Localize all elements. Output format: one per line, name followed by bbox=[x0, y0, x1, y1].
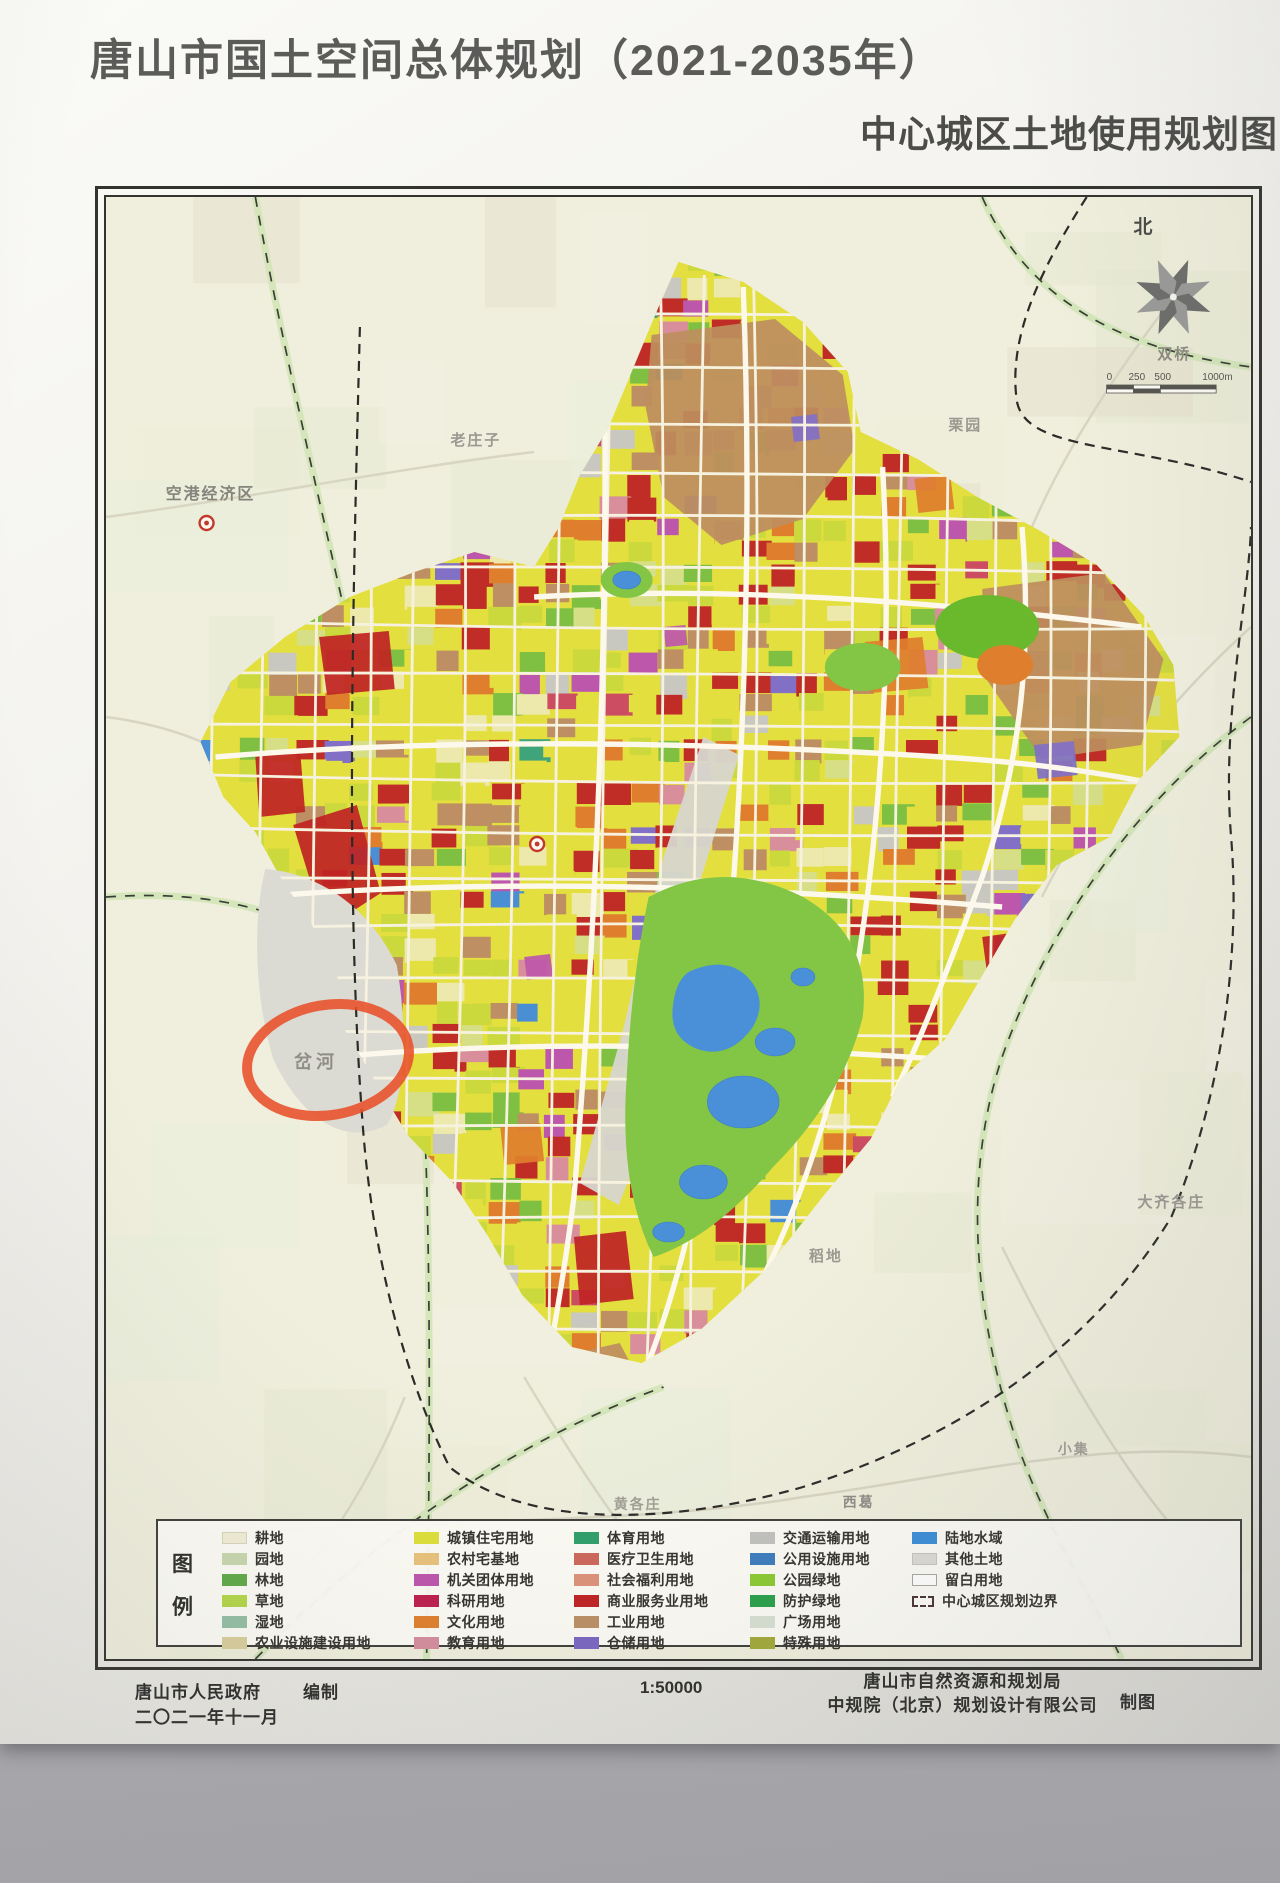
legend-label: 城镇住宅用地 bbox=[447, 1528, 534, 1548]
map-frame: 北02505001000m老庄子空港经济区栗园双桥大齐各庄稻地小集黄各庄西葛岔河… bbox=[95, 186, 1262, 1670]
legend-item: 体育用地 bbox=[574, 1530, 750, 1546]
color-swatch bbox=[222, 1574, 247, 1586]
legend-label: 园地 bbox=[255, 1549, 284, 1569]
place-label: 大齐各庄 bbox=[1137, 1193, 1205, 1211]
color-swatch bbox=[750, 1637, 775, 1649]
legend-label: 广场用地 bbox=[783, 1612, 841, 1632]
color-swatch bbox=[750, 1595, 775, 1607]
legend-label: 留白用地 bbox=[945, 1570, 1003, 1590]
legend-label: 体育用地 bbox=[607, 1528, 665, 1548]
color-swatch bbox=[414, 1574, 439, 1586]
legend-column: 耕地园地林地草地湿地农业设施建设用地 bbox=[222, 1530, 414, 1638]
publisher-name: 唐山市人民政府 bbox=[135, 1683, 261, 1702]
legend-item: 耕地 bbox=[222, 1530, 414, 1546]
legend: 图例 耕地园地林地草地湿地农业设施建设用地城镇住宅用地农村宅基地机关团体用地科研… bbox=[156, 1519, 1242, 1647]
color-swatch bbox=[222, 1637, 247, 1649]
credit-publisher: 唐山市人民政府编制 bbox=[135, 1678, 339, 1703]
color-swatch bbox=[414, 1595, 439, 1607]
color-swatch bbox=[414, 1637, 439, 1649]
poster-title: 唐山市国土空间总体规划（2021-2035年） bbox=[90, 26, 944, 88]
color-swatch bbox=[574, 1574, 599, 1586]
legend-label: 其他土地 bbox=[945, 1549, 1003, 1569]
legend-item: 社会福利用地 bbox=[574, 1572, 750, 1588]
legend-label: 特殊用地 bbox=[783, 1633, 841, 1653]
color-swatch bbox=[750, 1616, 775, 1628]
scale-tick-label: 250 bbox=[1129, 372, 1146, 383]
scale-tick-label: 1000m bbox=[1202, 372, 1232, 383]
color-swatch bbox=[750, 1574, 775, 1586]
legend-label: 农村宅基地 bbox=[447, 1549, 520, 1569]
legend-label: 中心城区规划边界 bbox=[942, 1591, 1058, 1611]
legend-label: 科研用地 bbox=[447, 1591, 505, 1611]
legend-title-char: 图 bbox=[172, 1548, 222, 1578]
legend-item: 广场用地 bbox=[750, 1614, 912, 1630]
legend-label: 陆地水域 bbox=[945, 1528, 1003, 1548]
legend-label: 农业设施建设用地 bbox=[255, 1633, 371, 1653]
poster-subtitle: 中心城区土地使用规划图 bbox=[860, 104, 1280, 158]
legend-item: 农村宅基地 bbox=[414, 1551, 574, 1567]
legend-label: 湿地 bbox=[255, 1612, 284, 1632]
legend-item: 湿地 bbox=[222, 1614, 414, 1630]
land-use-map: 北02505001000m老庄子空港经济区栗园双桥大齐各庄稻地小集黄各庄西葛岔河 bbox=[106, 197, 1251, 1659]
color-swatch bbox=[574, 1553, 599, 1565]
legend-item: 公园绿地 bbox=[750, 1572, 912, 1588]
north-label: 北 bbox=[1134, 216, 1153, 238]
legend-item: 农业设施建设用地 bbox=[222, 1635, 414, 1651]
boundary-symbol bbox=[912, 1596, 934, 1607]
poster-photo: 唐山市国土空间总体规划（2021-2035年） 中心城区土地使用规划图 北025… bbox=[0, 0, 1280, 1744]
legend-column: 体育用地医疗卫生用地社会福利用地商业服务业用地工业用地仓储用地 bbox=[574, 1530, 750, 1638]
credit-agency-role: 制图 bbox=[1120, 1688, 1156, 1713]
scale-tick-label: 500 bbox=[1154, 372, 1171, 383]
color-swatch bbox=[414, 1532, 439, 1544]
legend-column: 城镇住宅用地农村宅基地机关团体用地科研用地文化用地教育用地 bbox=[414, 1530, 574, 1638]
agency-1: 唐山市自然资源和规划局 bbox=[864, 1672, 1062, 1691]
place-label: 栗园 bbox=[948, 417, 982, 434]
credit-agencies: 唐山市自然资源和规划局 中规院（北京）规划设计有限公司 bbox=[795, 1670, 1130, 1718]
legend-item: 中心城区规划边界 bbox=[912, 1593, 1112, 1609]
annotation-label: 岔河 bbox=[294, 1051, 338, 1072]
legend-column: 陆地水域其他土地留白用地中心城区规划边界 bbox=[912, 1530, 1112, 1638]
legend-item: 陆地水域 bbox=[912, 1530, 1112, 1546]
place-label: 西葛 bbox=[843, 1494, 875, 1510]
legend-label: 医疗卫生用地 bbox=[607, 1549, 694, 1569]
scale-tick-label: 0 bbox=[1107, 372, 1113, 383]
legend-label: 林地 bbox=[255, 1570, 284, 1590]
color-swatch bbox=[414, 1553, 439, 1565]
color-swatch bbox=[574, 1616, 599, 1628]
color-swatch bbox=[912, 1532, 937, 1544]
legend-item: 教育用地 bbox=[414, 1635, 574, 1651]
color-swatch bbox=[912, 1574, 937, 1586]
legend-label: 教育用地 bbox=[447, 1633, 505, 1653]
legend-label: 社会福利用地 bbox=[607, 1570, 694, 1590]
place-label: 空港经济区 bbox=[166, 484, 256, 503]
place-label: 稻地 bbox=[809, 1247, 843, 1265]
legend-item: 草地 bbox=[222, 1593, 414, 1609]
agency-2: 中规院（北京）规划设计有限公司 bbox=[828, 1696, 1098, 1715]
legend-label: 防护绿地 bbox=[783, 1591, 841, 1611]
legend-label: 交通运输用地 bbox=[783, 1528, 870, 1548]
legend-item: 商业服务业用地 bbox=[574, 1593, 750, 1609]
legend-label: 耕地 bbox=[255, 1528, 284, 1548]
legend-column: 交通运输用地公用设施用地公园绿地防护绿地广场用地特殊用地 bbox=[750, 1530, 912, 1638]
color-swatch bbox=[574, 1637, 599, 1649]
place-label: 小集 bbox=[1057, 1441, 1090, 1457]
color-swatch bbox=[222, 1532, 247, 1544]
legend-item: 防护绿地 bbox=[750, 1593, 912, 1609]
legend-label: 公用设施用地 bbox=[783, 1549, 870, 1569]
credit-date: 二〇二一年十一月 bbox=[135, 1703, 279, 1728]
legend-label: 仓储用地 bbox=[607, 1633, 665, 1653]
legend-label: 商业服务业用地 bbox=[607, 1591, 709, 1611]
legend-item: 医疗卫生用地 bbox=[574, 1551, 750, 1567]
place-label: 双桥 bbox=[1157, 345, 1191, 363]
color-swatch bbox=[222, 1553, 247, 1565]
color-swatch bbox=[750, 1532, 775, 1544]
legend-title-char: 例 bbox=[172, 1591, 222, 1621]
place-label: 老庄子 bbox=[449, 431, 501, 449]
legend-item: 工业用地 bbox=[574, 1614, 750, 1630]
legend-item: 科研用地 bbox=[414, 1593, 574, 1609]
legend-item: 交通运输用地 bbox=[750, 1530, 912, 1546]
legend-item: 园地 bbox=[222, 1551, 414, 1567]
place-label: 黄各庄 bbox=[614, 1496, 662, 1512]
legend-item: 特殊用地 bbox=[750, 1635, 912, 1651]
map-canvas: 北02505001000m老庄子空港经济区栗园双桥大齐各庄稻地小集黄各庄西葛岔河… bbox=[104, 195, 1253, 1661]
publisher-role: 编制 bbox=[303, 1683, 339, 1702]
legend-item: 公用设施用地 bbox=[750, 1551, 912, 1567]
legend-item: 机关团体用地 bbox=[414, 1572, 574, 1588]
legend-item: 其他土地 bbox=[912, 1551, 1112, 1567]
legend-label: 公园绿地 bbox=[783, 1570, 841, 1590]
color-swatch bbox=[414, 1616, 439, 1628]
legend-item: 林地 bbox=[222, 1572, 414, 1588]
legend-item: 留白用地 bbox=[912, 1572, 1112, 1588]
color-swatch bbox=[222, 1616, 247, 1628]
legend-item: 仓储用地 bbox=[574, 1635, 750, 1651]
legend-label: 文化用地 bbox=[447, 1612, 505, 1632]
color-swatch bbox=[574, 1595, 599, 1607]
color-swatch bbox=[574, 1532, 599, 1544]
map-scale-text: 1:50000 bbox=[640, 1678, 702, 1698]
legend-title: 图例 bbox=[172, 1530, 222, 1638]
color-swatch bbox=[750, 1553, 775, 1565]
legend-label: 工业用地 bbox=[607, 1612, 665, 1632]
legend-label: 机关团体用地 bbox=[447, 1570, 534, 1590]
legend-label: 草地 bbox=[255, 1591, 284, 1611]
legend-item: 文化用地 bbox=[414, 1614, 574, 1630]
color-swatch bbox=[222, 1595, 247, 1607]
legend-item: 城镇住宅用地 bbox=[414, 1530, 574, 1546]
color-swatch bbox=[912, 1553, 937, 1565]
